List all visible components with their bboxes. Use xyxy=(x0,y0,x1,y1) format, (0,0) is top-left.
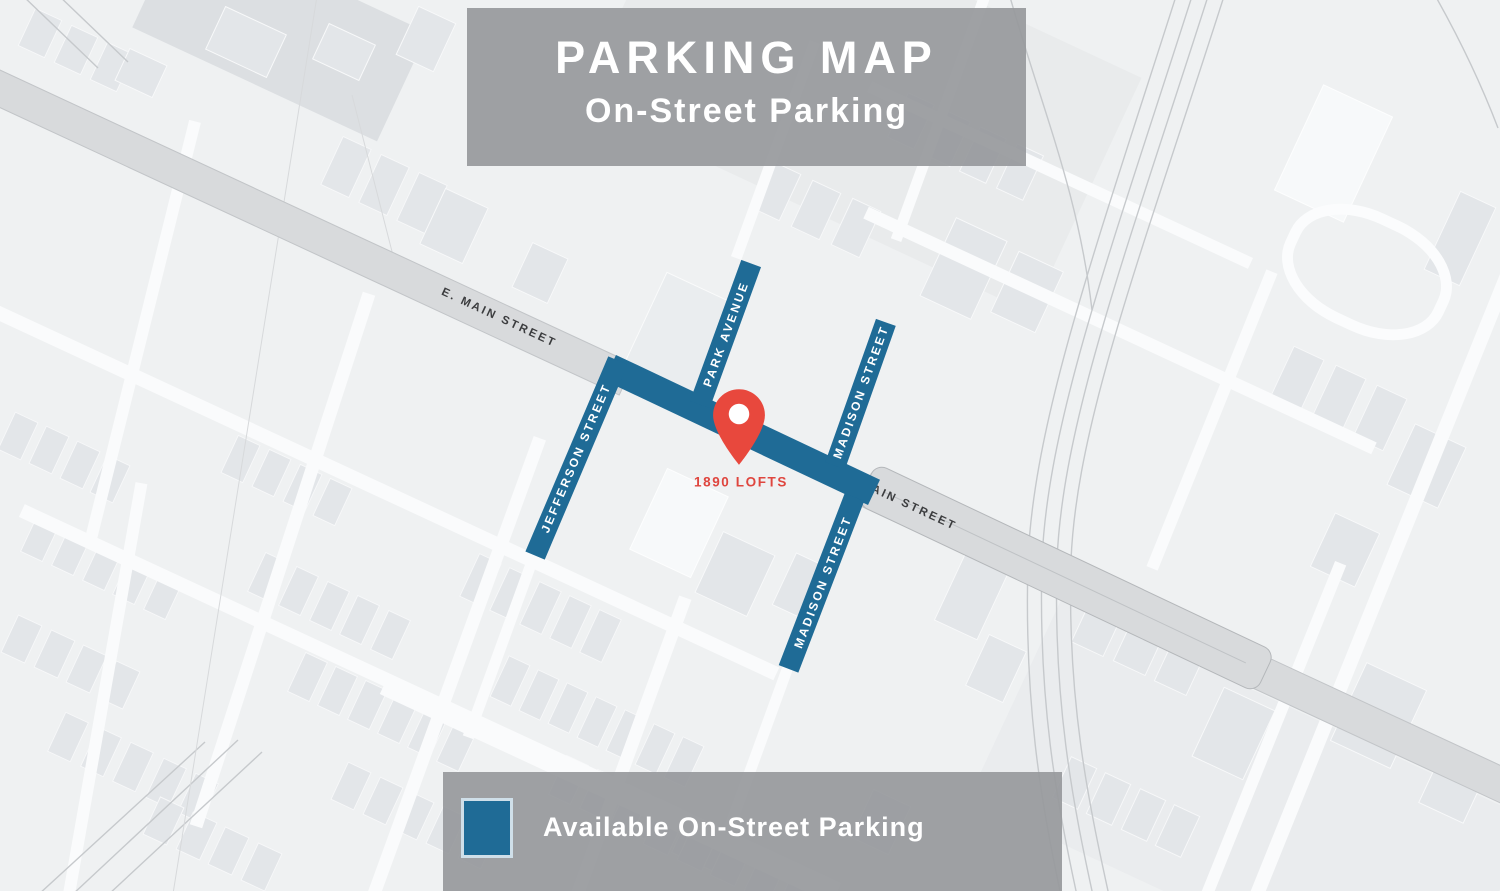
city-block xyxy=(132,0,427,141)
page-subtitle: On-Street Parking xyxy=(467,92,1026,131)
building xyxy=(1274,84,1393,223)
building xyxy=(54,25,99,76)
building xyxy=(33,629,75,678)
building xyxy=(313,478,353,527)
building xyxy=(220,435,260,484)
legend-swatch xyxy=(461,798,513,858)
building xyxy=(47,712,89,763)
loop-road xyxy=(1263,181,1471,363)
title-panel: PARKING MAP On-Street Parking xyxy=(467,8,1026,166)
location-pin-icon xyxy=(712,388,766,466)
building xyxy=(142,796,184,845)
building xyxy=(511,242,568,304)
legend-label: Available On-Street Parking xyxy=(543,812,925,843)
building xyxy=(112,742,154,793)
building xyxy=(0,614,42,663)
building xyxy=(1310,512,1381,588)
building xyxy=(208,827,250,876)
building xyxy=(370,609,411,659)
page-title: PARKING MAP xyxy=(467,32,1026,84)
marker-label: 1890 LOFTS xyxy=(694,475,788,490)
minor-street xyxy=(1146,269,1277,570)
parking-map: E. MAIN STREET E. MAIN STREET JEFFERSON … xyxy=(0,0,1500,891)
minor-street xyxy=(189,292,374,829)
legend-panel: Available On-Street Parking xyxy=(443,772,1062,891)
building xyxy=(18,8,63,59)
building xyxy=(330,761,371,810)
building xyxy=(240,842,282,891)
building xyxy=(251,449,291,498)
